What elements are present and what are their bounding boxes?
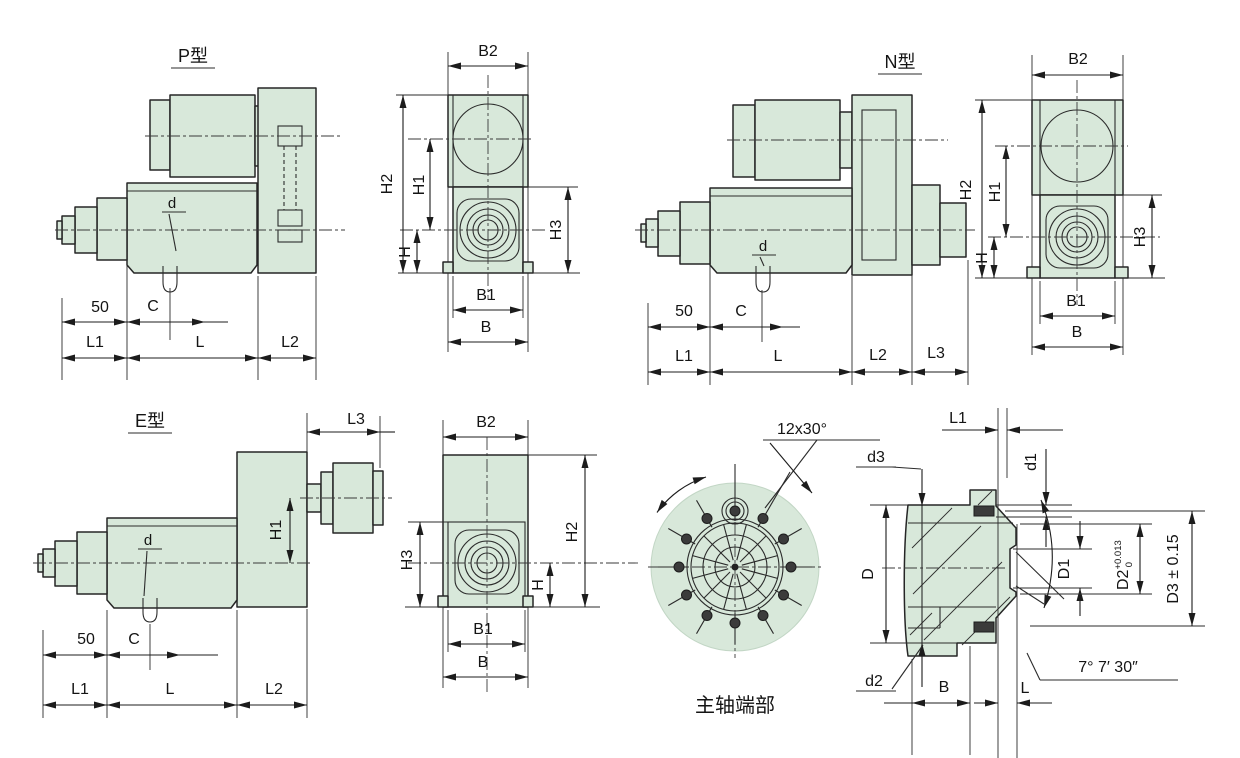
dim-label-h2: H2 (379, 174, 396, 195)
dim-label-d2: d2 (865, 673, 883, 690)
dim-label-b2: B2 (1068, 51, 1088, 68)
dim-label-l: L (1021, 680, 1030, 697)
dim-label-50: 50 (91, 299, 109, 316)
dim-label-b2: B2 (476, 414, 496, 431)
drawing-canvas: P型 d 50 C L1 L L (0, 0, 1240, 758)
dim-label-d: d (144, 532, 152, 549)
e-type-title: E型 (135, 411, 165, 431)
dim-label-l3: L3 (927, 345, 945, 362)
dim-label-b: B (478, 654, 489, 671)
dim-label-l3: L3 (347, 411, 365, 428)
dim-label-b1: B1 (473, 621, 493, 638)
dim-label-c: C (147, 298, 159, 315)
dim-label-d: d (168, 195, 176, 212)
dim-label-b1: B1 (1066, 293, 1086, 310)
dim-label-b: B (481, 319, 492, 336)
dim-label-l: L (196, 334, 205, 351)
bolt-pattern-label: 12x30° (777, 421, 827, 438)
dim-label-b: B (939, 679, 950, 696)
dim-label-h: H (397, 246, 414, 258)
dim-label-l2: L2 (265, 681, 283, 698)
e-type-front-view: B2 H3 H2 H B1 B (399, 414, 638, 692)
dim-label-h3: H3 (399, 550, 416, 571)
dim-label-h3: H3 (1132, 227, 1149, 248)
dim-label-D: D (860, 568, 877, 580)
drawing-sheet: P型 d 50 C L1 L L (0, 0, 1240, 758)
dim-label-c: C (735, 303, 747, 320)
dim-label-d1: d1 (1023, 453, 1040, 471)
dim-label-l1: L1 (949, 410, 967, 427)
dim-label-l2: L2 (869, 347, 887, 364)
dim-label-l: L (166, 681, 175, 698)
e-type-side-view: E型 H1 L3 d 50 C (33, 411, 395, 718)
spindle-face-title: 主轴端部 (695, 694, 775, 717)
dim-label-l1: L1 (86, 334, 104, 351)
dim-label-b1: B1 (476, 287, 496, 304)
dim-label-l: L (774, 348, 783, 365)
p-type-side-view: P型 d 50 C L1 L L (55, 46, 345, 380)
dim-label-50: 50 (77, 631, 95, 648)
dim-label-D3: D3 ± 0.15 (1165, 534, 1182, 603)
p-type-title: P型 (178, 46, 208, 66)
dim-label-D2: D2+0.0130 (1113, 540, 1135, 590)
n-type-front-view: B2 H2 H1 H H3 B1 B (958, 51, 1165, 355)
dim-label-l2: L2 (281, 334, 299, 351)
spindle-end-face-view: 12x30° 主轴端部 (648, 421, 880, 717)
dim-label-h1: H1 (987, 182, 1004, 203)
dim-label-h: H (974, 252, 991, 264)
dim-label-l1: L1 (675, 348, 693, 365)
dim-label-d3: d3 (867, 449, 885, 466)
dim-label-h2: H2 (564, 522, 581, 543)
taper-angle-label: 7° 7′ 30″ (1078, 659, 1138, 676)
dim-label-h1: H1 (268, 520, 285, 541)
n-type-side-view: N型 d 50 C L1 L L (635, 52, 975, 385)
dim-label-d: d (759, 238, 767, 255)
p-type-front-view: B2 H2 H1 H H3 B1 B (379, 43, 580, 352)
dim-label-c: C (128, 631, 140, 648)
dim-label-h1: H1 (411, 175, 428, 196)
spindle-end-section-view: L1 d1 d3 d2 D D1 D2+0.0130 (856, 408, 1205, 758)
dim-label-50: 50 (675, 303, 693, 320)
dim-label-l1: L1 (71, 681, 89, 698)
dim-label-D1: D1 (1056, 559, 1073, 580)
dim-label-b: B (1072, 324, 1083, 341)
n-type-title: N型 (885, 52, 916, 72)
dim-label-h: H (530, 579, 547, 591)
dim-label-h3: H3 (548, 220, 565, 241)
dim-label-b2: B2 (478, 43, 498, 60)
dim-label-h2: H2 (958, 180, 975, 201)
